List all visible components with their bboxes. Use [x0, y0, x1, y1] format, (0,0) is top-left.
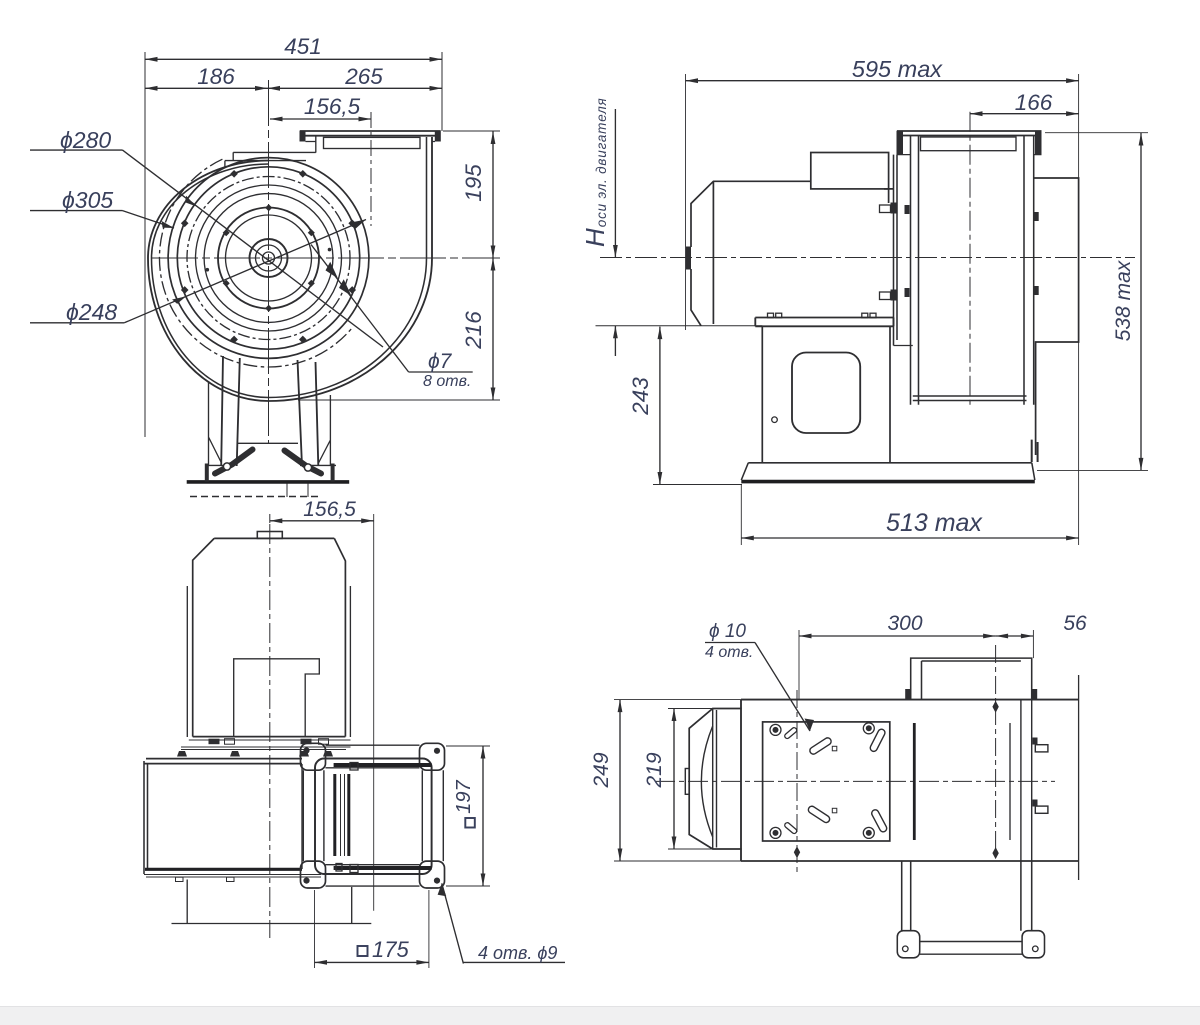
svg-text:538 max: 538 max — [1112, 259, 1135, 341]
svg-text:513 max: 513 max — [886, 509, 983, 537]
svg-text:197: 197 — [453, 779, 475, 813]
svg-text:166: 166 — [1015, 90, 1053, 115]
svg-text:ϕ7: ϕ7 — [428, 350, 453, 373]
svg-text:ϕ305: ϕ305 — [62, 187, 113, 213]
svg-text:595 max: 595 max — [852, 56, 943, 82]
svg-text:249: 249 — [590, 752, 613, 788]
svg-text:4 отв.: 4 отв. — [705, 644, 753, 661]
svg-text:451: 451 — [284, 34, 322, 59]
svg-text:156,5: 156,5 — [304, 94, 361, 119]
svg-text:156,5: 156,5 — [303, 498, 356, 521]
svg-text:195: 195 — [461, 164, 486, 202]
svg-text:175: 175 — [372, 937, 409, 962]
svg-text:300: 300 — [887, 612, 922, 635]
svg-text:219: 219 — [643, 752, 666, 788]
svg-text:ϕ 10: ϕ 10 — [709, 621, 746, 642]
svg-text:ϕ248: ϕ248 — [66, 299, 117, 325]
svg-text:243: 243 — [628, 377, 653, 416]
svg-text:56: 56 — [1063, 612, 1087, 635]
svg-text:4 отв. ϕ9: 4 отв. ϕ9 — [478, 943, 557, 963]
svg-text:ϕ280: ϕ280 — [60, 127, 111, 153]
svg-text:265: 265 — [344, 64, 383, 89]
svg-text:8 отв.: 8 отв. — [423, 373, 471, 390]
svg-text:216: 216 — [461, 311, 486, 350]
svg-text:186: 186 — [197, 64, 235, 89]
